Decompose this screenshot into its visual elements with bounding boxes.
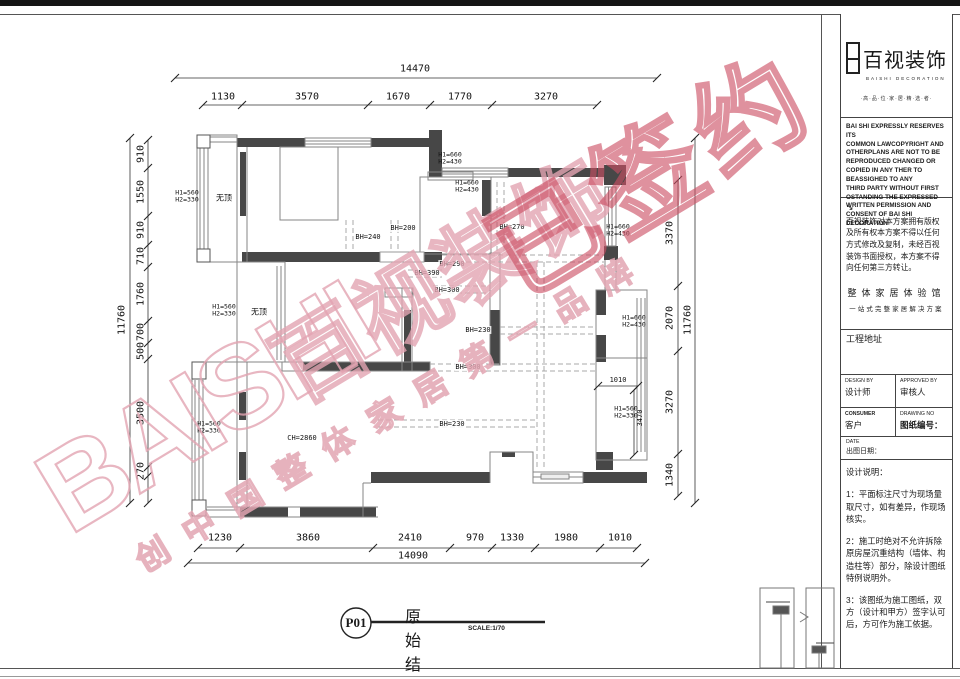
- dim-right-segment: 3270: [664, 389, 676, 415]
- dim-left-segment: 270: [135, 461, 147, 481]
- design-notes-title: 设计说明：: [846, 466, 947, 478]
- dim-left-segment: 3500: [135, 400, 147, 426]
- consumer-cell: CONSUMER 客户: [841, 408, 896, 436]
- dim-right-segment: 3370: [664, 220, 676, 246]
- window-height-label: H1=660 H2=430: [454, 180, 479, 195]
- dim-bottom-segment: 1010: [607, 532, 633, 544]
- showroom-line1: 整体家居体验馆: [846, 287, 947, 301]
- dim-top-segment: 1130: [210, 91, 236, 103]
- beam-height-label: BH=390: [413, 269, 440, 277]
- beam-height-label: BH=270: [498, 223, 525, 231]
- dim-bottom-segment: 2410: [397, 532, 423, 544]
- beam-height-label: BH=200: [389, 224, 416, 232]
- dim-left-segment: 910: [135, 144, 147, 164]
- drawing-sheet: 1447014090117601176011303570167017703270…: [0, 0, 960, 679]
- approved-by-cn: 审核人: [900, 386, 948, 398]
- dim-right-total: 11760: [682, 304, 694, 336]
- dim-bottom-segment: 970: [465, 532, 485, 544]
- design-by-cell: DESIGN BY 设计师: [841, 375, 896, 407]
- copyright-chinese-section: ↘ 百视装饰对本方案拥有版权及所有权本方案不得以任何方式修改及复制，未经百视装饰…: [841, 198, 952, 330]
- drawing-no-en: DRAWING NO: [900, 411, 948, 417]
- copyright-english: BAI SHI EXPRESSLY RESERVES ITS COMMON LA…: [841, 118, 952, 198]
- dim-left-segment: 500: [135, 341, 147, 361]
- logo-section: 百视装饰 BAISHI DECORATION ·高·品·位·家·居·精·选·者·: [841, 14, 952, 118]
- consumer-row: CONSUMER 客户 DRAWING NO 图纸编号：: [841, 408, 952, 437]
- dim-left-segment: 1760: [135, 281, 147, 307]
- consumer-en: CONSUMER: [845, 411, 891, 417]
- approved-by-en: APPROVED BY: [900, 378, 948, 384]
- balcony-label: 无顶: [250, 307, 268, 316]
- baishi-logo-icon: [846, 42, 860, 74]
- design-by-cn: 设计师: [845, 386, 891, 398]
- date-row: DATE 出图日期：: [841, 437, 952, 460]
- ceiling-height-label: CH=2860: [286, 434, 318, 442]
- dim-left-segment: 700: [135, 322, 147, 342]
- brand-name: 百视装饰: [863, 44, 947, 73]
- beam-height-label: BH=230: [464, 326, 491, 334]
- copyright-chinese: 百视装饰对本方案拥有版权及所有权本方案不得以任何方式修改及复制，未经百视装饰书面…: [846, 217, 940, 273]
- arrow-icon: ↘: [846, 201, 947, 215]
- window-height-label: H1=660 H2=430: [605, 224, 630, 239]
- window-height-label: H1=560 H2=330: [196, 421, 221, 436]
- window-height-label: H1=660 H2=430: [437, 152, 462, 167]
- dim-left-segment: 910: [135, 220, 147, 240]
- dim-top-segment: 1670: [385, 91, 411, 103]
- dim-top-total: 14470: [399, 63, 431, 75]
- window-height-label: H1=560 H2=330: [174, 190, 199, 205]
- dim-left-total: 11760: [116, 304, 128, 336]
- date-en: DATE: [846, 439, 947, 445]
- drawing-number: P01: [346, 615, 367, 631]
- design-note: 1：平面标注尺寸为现场量取尺寸，如有差异，作现场核实。: [846, 488, 947, 525]
- project-address: 工程地址: [841, 330, 952, 375]
- design-notes-list: 1：平面标注尺寸为现场量取尺寸，如有差异，作现场核实。2：施工时绝对不允许拆除原…: [846, 488, 947, 630]
- dim-top-segment: 3270: [533, 91, 559, 103]
- brand-tagline: ·高·品·位·家·居·精·选·者·: [846, 95, 947, 102]
- brand-name-en: BAISHI DECORATION: [866, 76, 947, 81]
- beam-height-label: BH=290: [438, 260, 465, 268]
- approved-by-cell: APPROVED BY 审核人: [896, 375, 952, 407]
- design-note: 2：施工时绝对不允许拆除原房屋沉重结构（墙体、构造柱等）部分，除设计图纸特例说明…: [846, 535, 947, 585]
- balcony-label: 无顶: [215, 193, 233, 202]
- showroom-line2: 一站式完整家居解决方案: [846, 305, 947, 315]
- beam-height-label: BH=300: [433, 286, 460, 294]
- beam-height-label: BH=300: [454, 363, 481, 371]
- design-by-en: DESIGN BY: [845, 378, 891, 384]
- design-note: 3：该图纸为施工图纸，双方（设计和甲方）签字认可后，方可作为施工依据。: [846, 594, 947, 631]
- window-height-label: H1=560 H2=330: [613, 406, 638, 421]
- dim-bottom-segment: 1330: [499, 532, 525, 544]
- dim-inner-width: 1010: [609, 376, 628, 384]
- dim-bottom-total: 14090: [397, 550, 429, 562]
- dim-right-segment: 2070: [664, 305, 676, 331]
- designer-row: DESIGN BY 设计师 APPROVED BY 审核人: [841, 375, 952, 408]
- consumer-cn: 客户: [845, 419, 891, 431]
- dim-top-segment: 3570: [294, 91, 320, 103]
- project-address-label: 工程地址: [846, 334, 882, 344]
- dim-bottom-segment: 1230: [207, 532, 233, 544]
- window-height-label: H1=660 H2=430: [621, 315, 646, 330]
- plan-labels-layer: 1447014090117601176011303570167017703270…: [0, 0, 960, 679]
- drawing-scale: SCALE:1/70: [468, 625, 505, 632]
- dim-right-segment: 1340: [664, 462, 676, 488]
- drawing-no-cell: DRAWING NO 图纸编号：: [896, 408, 952, 436]
- drawing-title: 原始结构图: [405, 603, 424, 679]
- dim-bottom-segment: 1980: [553, 532, 579, 544]
- window-height-label: H1=560 H2=330: [211, 304, 236, 319]
- drawing-no-cn: 图纸编号：: [900, 419, 948, 431]
- dim-left-segment: 710: [135, 246, 147, 266]
- title-block: 百视装饰 BAISHI DECORATION ·高·品·位·家·居·精·选·者·…: [840, 14, 953, 668]
- design-notes-section: 设计说明： 1：平面标注尺寸为现场量取尺寸，如有差异，作现场核实。2：施工时绝对…: [841, 460, 952, 668]
- dim-left-segment: 1550: [135, 179, 147, 205]
- dim-top-segment: 1770: [447, 91, 473, 103]
- date-cn: 出图日期：: [846, 446, 947, 456]
- beam-height-label: BH=230: [438, 420, 465, 428]
- beam-height-label: BH=240: [354, 233, 381, 241]
- dim-bottom-segment: 3860: [295, 532, 321, 544]
